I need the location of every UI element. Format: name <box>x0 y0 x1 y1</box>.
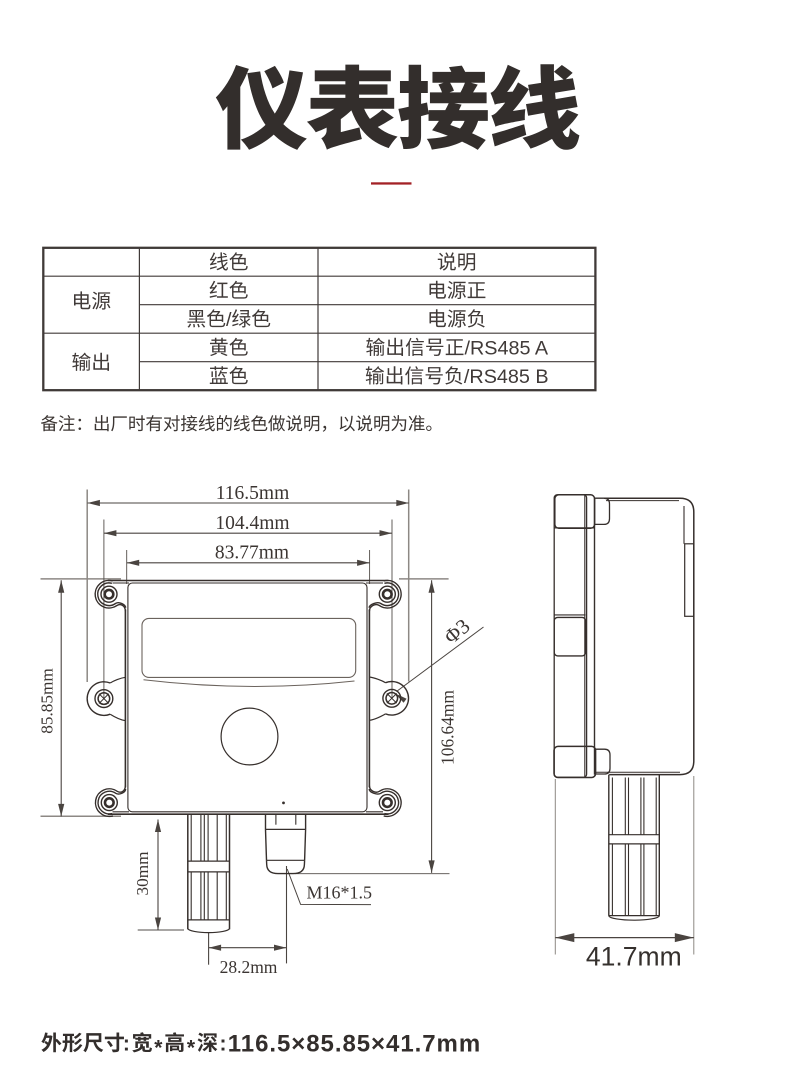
svg-text::: : <box>123 1032 130 1055</box>
svg-text:41.7mm: 41.7mm <box>586 942 682 972</box>
svg-text::: : <box>220 1032 227 1055</box>
svg-text:106.64mm: 106.64mm <box>438 690 458 765</box>
svg-text:30mm: 30mm <box>133 851 152 896</box>
svg-text:28.2mm: 28.2mm <box>220 957 278 977</box>
svg-text:*: * <box>154 1036 163 1059</box>
svg-text:104.4mm: 104.4mm <box>215 513 289 534</box>
svg-text:/: / <box>226 309 232 331</box>
svg-text:*: * <box>187 1036 196 1059</box>
svg-text:/RS485 B: /RS485 B <box>464 366 549 388</box>
svg-text:M16*1.5: M16*1.5 <box>307 883 373 903</box>
svg-text:116.5mm: 116.5mm <box>216 483 290 504</box>
svg-text:83.77mm: 83.77mm <box>215 543 289 564</box>
svg-text:116.5×85.85×41.7mm: 116.5×85.85×41.7mm <box>228 1030 481 1057</box>
svg-text:85.85mm: 85.85mm <box>38 668 57 734</box>
svg-text:/RS485 A: /RS485 A <box>464 337 548 359</box>
